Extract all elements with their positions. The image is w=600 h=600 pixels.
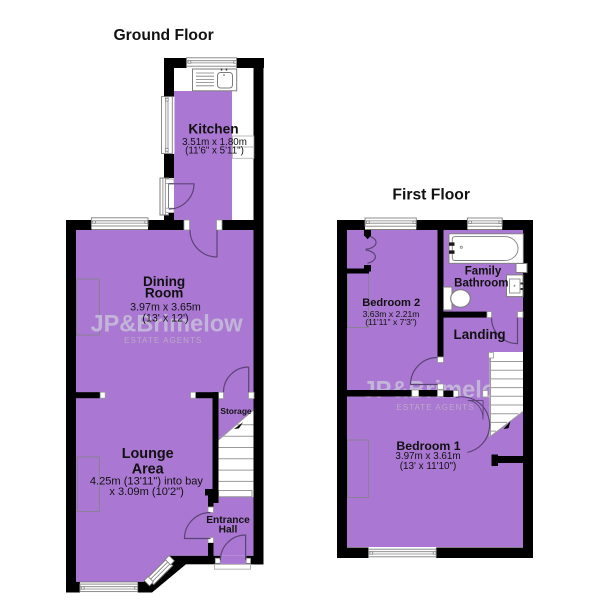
svg-text:First Floor: First Floor	[392, 187, 470, 204]
svg-text:ESTATE AGENTS: ESTATE AGENTS	[124, 336, 202, 345]
svg-text:(13' x 11'10"): (13' x 11'10")	[400, 461, 457, 472]
svg-text:Kitchen: Kitchen	[188, 122, 238, 137]
svg-text:ESTATE AGENTS: ESTATE AGENTS	[396, 403, 474, 412]
svg-text:(13' x 12'): (13' x 12')	[142, 312, 188, 324]
svg-text:Ground Floor: Ground Floor	[113, 27, 213, 44]
svg-text:Storage: Storage	[220, 406, 252, 416]
svg-text:Bathroom: Bathroom	[454, 277, 508, 289]
svg-text:Room: Room	[145, 286, 184, 301]
svg-text:Lounge: Lounge	[122, 446, 174, 462]
svg-text:x 3.09m (10'2"): x 3.09m (10'2")	[109, 486, 184, 498]
svg-text:Bedroom 2: Bedroom 2	[362, 297, 420, 309]
svg-text:Hall: Hall	[219, 524, 238, 535]
svg-text:Family: Family	[465, 265, 502, 277]
svg-text:(11'6" x 5'11"): (11'6" x 5'11")	[185, 146, 244, 157]
svg-text:Landing: Landing	[454, 327, 506, 342]
svg-text:(11'11" x 7'3"): (11'11" x 7'3")	[365, 317, 417, 327]
